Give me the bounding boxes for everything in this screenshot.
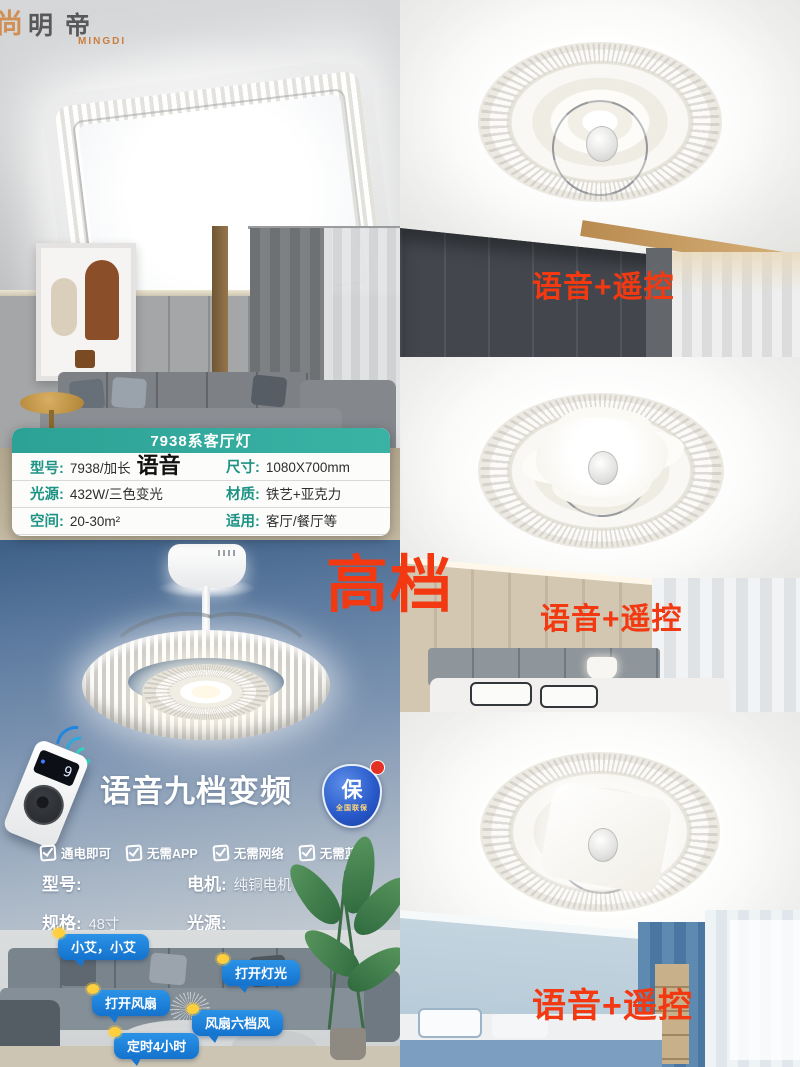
blue-blanket — [400, 1040, 662, 1067]
photo-overlay-text: 语音+遥控 — [532, 978, 693, 1027]
fan-spec-cell: 型号: — [42, 870, 187, 895]
badge-sub-text: 全国联保 — [336, 803, 368, 813]
voice-bubble-text: 定时4小时 — [127, 1039, 186, 1054]
ring-inner-disc — [142, 664, 270, 720]
right-photo-column: 语音+遥控 语音+遥控 — [400, 0, 800, 1067]
sun-icon — [87, 984, 99, 994]
remote-control: 9 — [2, 738, 91, 850]
sun-icon — [187, 1004, 199, 1014]
canopy-vents — [218, 550, 236, 556]
sofa-pillow — [111, 377, 147, 409]
feature-label: 无需APP — [147, 843, 198, 862]
ceiling-fan-photo-3: 语音+遥控 — [400, 712, 800, 1067]
spec-card-title: 7938系客厅灯 — [12, 428, 390, 453]
ceiling-fan-photo-1: 语音+遥控 — [400, 0, 800, 357]
warranty-badge: 保 全国联保 — [322, 760, 384, 828]
photo-overlay-text: 语音+遥控 — [532, 262, 675, 306]
voice-bubble-text: 风扇六档风 — [205, 1016, 270, 1031]
wood-column — [212, 226, 228, 384]
artwork-arch-shape — [85, 260, 119, 340]
spec-cell: 适用: 客厅/餐厅等 — [226, 510, 390, 531]
spec-label: 光源: — [30, 483, 64, 504]
spec-row: 型号: 7938/加长 语音 尺寸: 1080X700mm — [12, 453, 390, 481]
voice-bubble: 小艾，小艾 — [58, 934, 149, 960]
check-icon — [298, 844, 315, 861]
feature-label: 无需网络 — [234, 843, 284, 862]
feature-item: 通电即可 — [40, 843, 111, 862]
sofa-pillow — [251, 374, 288, 407]
spec-cell: 空间: 20-30m² — [12, 510, 226, 531]
fan-spec-label: 电机: — [187, 870, 227, 895]
product-headline: 语音九档变频 — [100, 766, 292, 811]
fan-hub — [586, 126, 618, 162]
brand-mark-char: 尚 — [0, 2, 23, 41]
spec-label: 适用: — [226, 510, 260, 531]
voice-bubble: 打开灯光 — [222, 960, 300, 986]
artwork-pill-shape — [51, 278, 77, 336]
brand-name-en: MINGDI — [78, 36, 126, 47]
fan-hub — [588, 828, 618, 862]
scene-pillow — [149, 952, 187, 985]
remote-display-digit: 9 — [61, 763, 75, 781]
spec-label: 空间: — [30, 510, 64, 531]
feature-label: 通电即可 — [61, 843, 111, 862]
brand-watermark: 尚 明帝 MINGDI — [0, 0, 160, 60]
sun-icon — [217, 954, 229, 964]
photo-overlay-text: 语音+遥控 — [540, 594, 683, 638]
check-icon — [39, 844, 56, 861]
spec-row: 空间: 20-30m² 适用: 客厅/餐厅等 — [12, 507, 390, 535]
voice-bubble-text: 打开风扇 — [105, 996, 157, 1011]
bed-pillow — [470, 682, 532, 706]
badge-main-text: 保 — [342, 780, 363, 801]
spec-row: 光源: 432W/三色变光 材质: 铁艺+亚克力 — [12, 480, 390, 508]
spec-label: 型号: — [30, 457, 64, 478]
fan-spec-label: 型号: — [42, 870, 82, 895]
bed-pillow — [418, 1008, 482, 1038]
premium-label: 高档 — [326, 552, 454, 620]
feature-item: 无需APP — [126, 843, 198, 862]
fan-hub — [588, 451, 618, 485]
spec-label: 材质: — [226, 483, 260, 504]
voice-bubble-text: 小艾，小艾 — [71, 940, 136, 955]
spec-value: 7938/加长 — [70, 457, 131, 477]
bed-pillow — [540, 685, 598, 708]
feature-item: 无需网络 — [213, 843, 284, 862]
bright-window — [730, 920, 800, 1060]
ceiling-fan-photo-2: 语音+遥控 — [400, 357, 800, 712]
spec-value: 1080X700mm — [266, 460, 350, 475]
plant-pot — [330, 1028, 366, 1060]
voice-bubble: 风扇六档风 — [192, 1010, 283, 1036]
spec-cell: 型号: 7938/加长 语音 — [12, 455, 226, 478]
spec-value: 客厅/餐厅等 — [266, 510, 337, 530]
check-icon — [212, 844, 229, 861]
feature-list: 通电即可 无需APP 无需网络 无需蓝牙 — [40, 843, 390, 862]
spec-card: 7938系客厅灯 型号: 7938/加长 语音 尺寸: 1080X700mm 光… — [12, 428, 390, 536]
crystal-ring-light — [82, 630, 330, 740]
spec-cell: 光源: 432W/三色变光 — [12, 483, 226, 504]
voice-bubble-text: 打开灯光 — [235, 966, 287, 981]
spec-cell: 材质: 铁艺+亚克力 — [226, 483, 390, 504]
spec-label: 尺寸: — [226, 456, 260, 477]
wall-artwork — [36, 243, 136, 381]
spec-cell: 尺寸: 1080X700mm — [226, 456, 390, 477]
fan-canopy — [168, 544, 246, 588]
badge-notification-dot — [370, 760, 385, 775]
product-poster: 7938系客厅灯 型号: 7938/加长 语音 尺寸: 1080X700mm 光… — [0, 0, 800, 1067]
fan-spec-value: 纯铜电机 — [234, 874, 292, 895]
voice-bubble: 定时4小时 — [114, 1033, 199, 1059]
fan-spec-cell: 电机: 纯铜电机 — [187, 870, 292, 895]
spec-value: 20-30m² — [70, 514, 120, 529]
artwork-stack-shape — [75, 350, 95, 368]
bedside-lamp — [587, 657, 617, 679]
remote-display: 9 — [33, 749, 81, 787]
check-icon — [125, 844, 142, 861]
sun-icon — [109, 1027, 121, 1037]
voice-bubble: 打开风扇 — [92, 990, 170, 1016]
spec-voice-highlight: 语音 — [137, 455, 181, 477]
spec-value: 432W/三色变光 — [70, 483, 163, 503]
spec-value: 铁艺+亚克力 — [266, 483, 341, 503]
sun-icon — [53, 928, 65, 938]
